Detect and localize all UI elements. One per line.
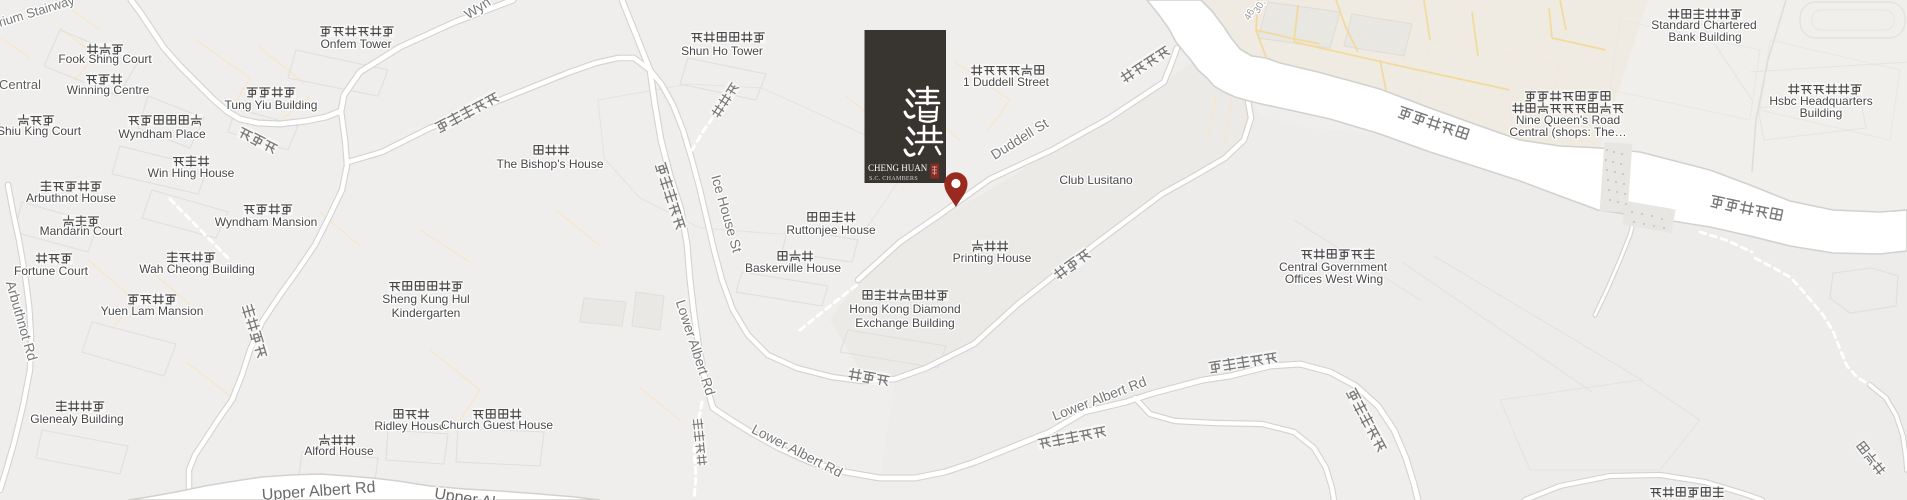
svg-text:Fook Shing Court: Fook Shing Court xyxy=(58,52,152,66)
svg-text:Wyndham Mansion: Wyndham Mansion xyxy=(215,215,318,229)
svg-text:Glenealy Building: Glenealy Building xyxy=(30,412,123,426)
svg-text:Yuen Lam Mansion: Yuen Lam Mansion xyxy=(101,304,204,318)
svg-text:S.C. CHAMBERS: S.C. CHAMBERS xyxy=(869,175,918,182)
svg-text:Baskerville House: Baskerville House xyxy=(745,261,841,275)
svg-text:Club Lusitano: Club Lusitano xyxy=(1059,173,1133,187)
svg-text:Offices West Wing: Offices West Wing xyxy=(1285,272,1383,286)
svg-text:Tung Yiu Building: Tung Yiu Building xyxy=(225,98,318,112)
svg-text:Fortune Court: Fortune Court xyxy=(14,264,89,278)
svg-text:Central (shops: The…: Central (shops: The… xyxy=(1509,125,1626,139)
svg-text:1 Duddell Street: 1 Duddell Street xyxy=(963,75,1050,89)
svg-text:Hong Kong Diamond: Hong Kong Diamond xyxy=(849,302,960,316)
svg-text:Alford House: Alford House xyxy=(304,444,374,458)
svg-text:Sheng Kung Hul: Sheng Kung Hul xyxy=(382,292,469,306)
svg-text:Printing House: Printing House xyxy=(953,251,1032,265)
svg-text:Mandarin Court: Mandarin Court xyxy=(40,224,123,238)
svg-text:Winning Centre: Winning Centre xyxy=(67,83,150,97)
svg-text:Ruttonjee House: Ruttonjee House xyxy=(786,223,876,237)
svg-text:Win Hing House: Win Hing House xyxy=(148,166,235,180)
svg-text:Shun Ho Tower: Shun Ho Tower xyxy=(681,44,763,58)
svg-text:Church Guest House: Church Guest House xyxy=(441,418,553,432)
svg-text:The Bishop's House: The Bishop's House xyxy=(496,157,603,171)
svg-text:Building: Building xyxy=(1800,106,1843,120)
svg-text:Ridley House: Ridley House xyxy=(374,419,446,433)
svg-text:Kindergarten: Kindergarten xyxy=(392,306,461,320)
svg-text:CHENG HUAN: CHENG HUAN xyxy=(868,163,928,173)
svg-text:Central: Central xyxy=(0,77,41,92)
svg-text:Bank Building: Bank Building xyxy=(1668,30,1741,44)
svg-text:Wyndham Place: Wyndham Place xyxy=(118,127,206,141)
svg-text:Exchange Building: Exchange Building xyxy=(855,316,954,330)
svg-text:Onfem Tower: Onfem Tower xyxy=(320,37,391,51)
svg-text:Arbuthnot House: Arbuthnot House xyxy=(26,191,116,205)
svg-text:Shiu King Court: Shiu King Court xyxy=(0,124,82,138)
svg-text:Wah Cheong Building: Wah Cheong Building xyxy=(139,262,255,276)
